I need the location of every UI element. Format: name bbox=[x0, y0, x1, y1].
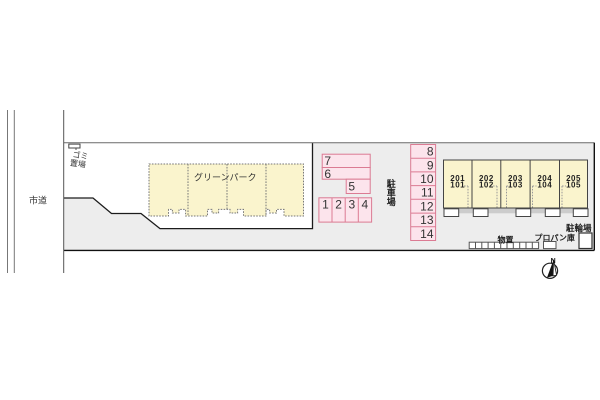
svg-text:7: 7 bbox=[324, 154, 331, 168]
svg-text:5: 5 bbox=[348, 179, 355, 193]
svg-text:物置: 物置 bbox=[498, 234, 514, 244]
svg-text:グリーンパーク: グリーンパーク bbox=[194, 172, 257, 183]
svg-text:N: N bbox=[551, 258, 556, 265]
svg-text:4: 4 bbox=[362, 197, 369, 211]
svg-text:市道: 市道 bbox=[29, 195, 47, 206]
svg-text:12: 12 bbox=[420, 199, 434, 213]
svg-text:1: 1 bbox=[322, 197, 329, 211]
svg-text:2: 2 bbox=[335, 197, 342, 211]
svg-text:102: 102 bbox=[479, 181, 494, 190]
svg-text:101: 101 bbox=[450, 181, 465, 190]
svg-text:11: 11 bbox=[421, 186, 434, 200]
svg-text:14: 14 bbox=[420, 227, 434, 241]
svg-text:105: 105 bbox=[566, 181, 581, 190]
svg-text:104: 104 bbox=[537, 181, 552, 190]
svg-text:103: 103 bbox=[508, 181, 523, 190]
svg-text:3: 3 bbox=[348, 197, 355, 211]
svg-text:駐輪場: 駐輪場 bbox=[566, 223, 592, 233]
svg-text:8: 8 bbox=[427, 145, 434, 159]
svg-text:場: 場 bbox=[387, 196, 396, 207]
svg-text:6: 6 bbox=[324, 167, 331, 181]
svg-text:プロパン庫: プロパン庫 bbox=[535, 233, 575, 243]
svg-text:13: 13 bbox=[420, 213, 434, 227]
svg-text:10: 10 bbox=[420, 172, 434, 186]
svg-text:9: 9 bbox=[427, 158, 434, 172]
